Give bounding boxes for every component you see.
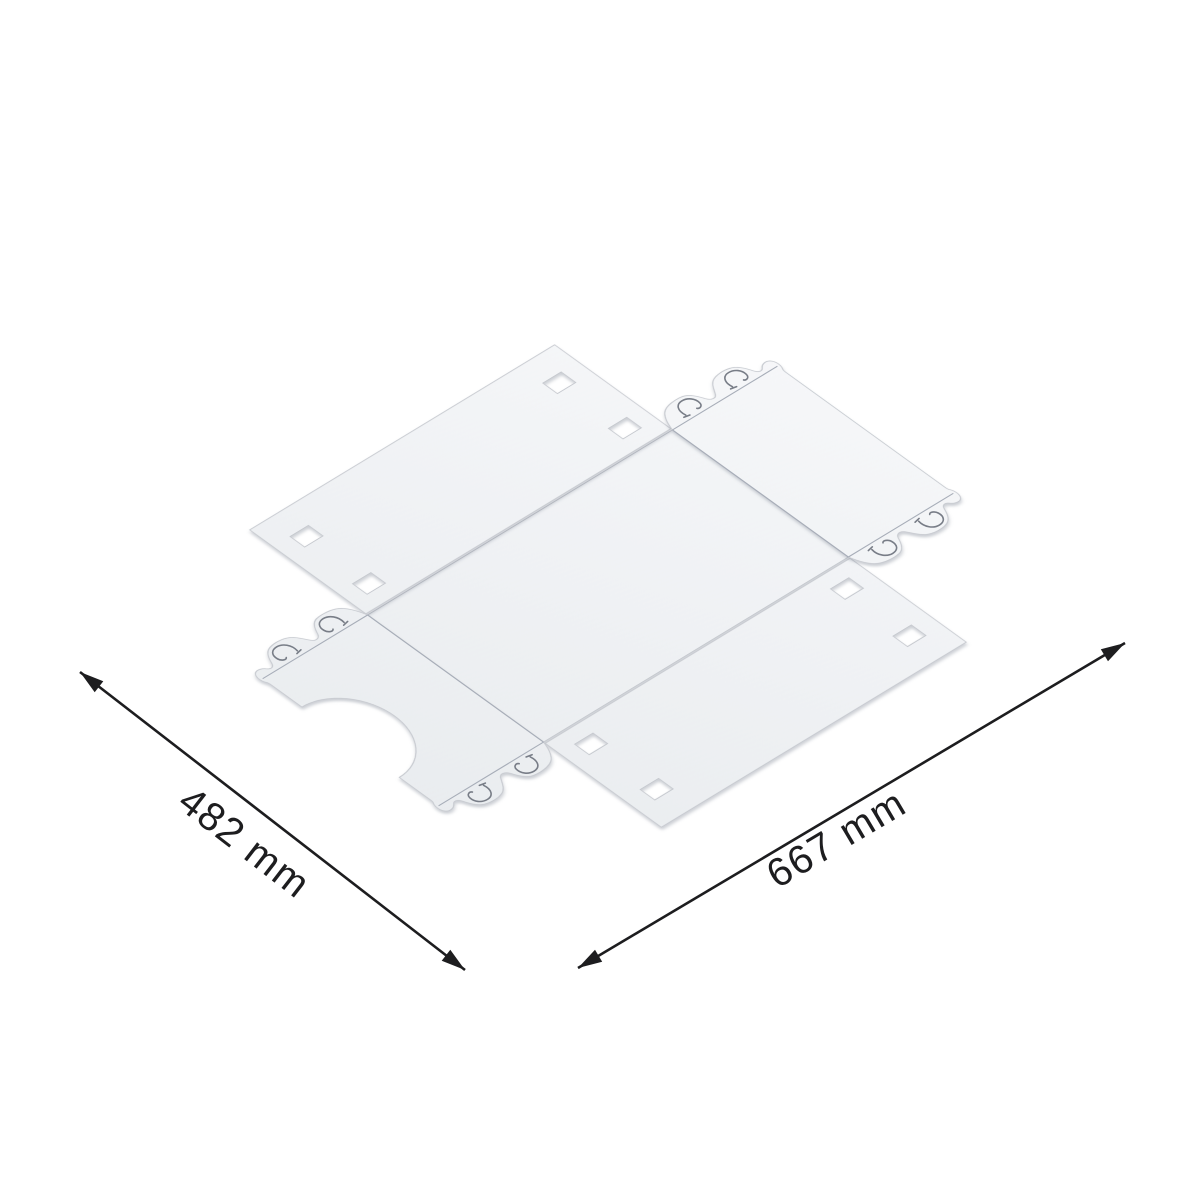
arrowhead-icon bbox=[442, 950, 465, 970]
arrowhead-icon bbox=[1101, 643, 1125, 661]
dimension-label-width: 667 mm bbox=[759, 781, 913, 897]
dieline-illustration: 482 mm 667 mm bbox=[0, 0, 1200, 1200]
arrowhead-icon bbox=[80, 672, 103, 692]
arrowhead-icon bbox=[578, 950, 602, 968]
dieline-group bbox=[143, 280, 1074, 893]
render-canvas: 482 mm 667 mm bbox=[0, 0, 1200, 1200]
